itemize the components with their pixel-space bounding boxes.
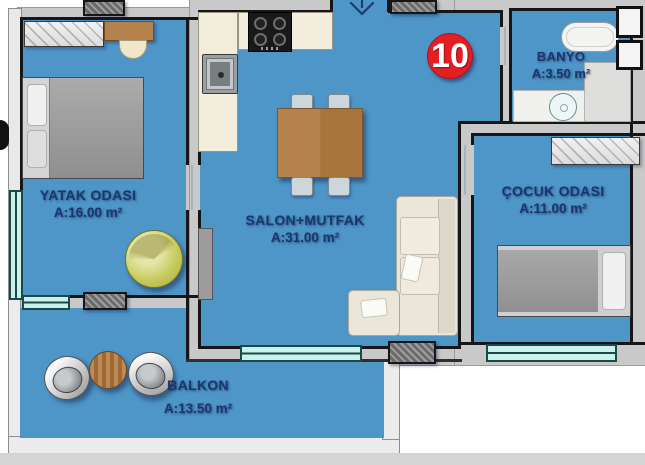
radiator-column xyxy=(390,0,437,14)
armchair-back xyxy=(129,234,179,284)
kids-room-label: ÇOCUK ODASI A:11.00 m² xyxy=(478,182,628,218)
balcony-parapet xyxy=(8,436,400,454)
unit-number: 10 xyxy=(431,39,469,73)
bathroom-sink-drain xyxy=(560,104,568,112)
balcony-parapet xyxy=(382,360,400,440)
room-name: ÇOCUK ODASI xyxy=(478,182,628,200)
balcony-chair-seat xyxy=(50,363,86,396)
room-name: SALON+MUTFAK xyxy=(225,211,385,229)
desk xyxy=(104,21,154,41)
wall-line xyxy=(186,210,189,362)
sofa xyxy=(396,196,458,336)
room-name: BANYO xyxy=(505,49,617,66)
room-area: A:11.00 m² xyxy=(478,200,628,218)
wall-line xyxy=(500,10,503,27)
kids-bed xyxy=(497,245,631,317)
wall-line xyxy=(509,8,633,11)
wardrobe xyxy=(24,21,104,47)
living-kitchen-label: SALON+MUTFAK A:31.00 m² xyxy=(225,211,385,247)
wall-line xyxy=(471,195,474,345)
wall-line xyxy=(500,65,503,124)
unit-number-badge: 10 xyxy=(427,33,473,79)
armchair xyxy=(125,230,183,288)
bathtub-inner xyxy=(566,27,614,47)
burner xyxy=(254,33,267,46)
pillow xyxy=(27,84,47,126)
dining-table xyxy=(277,108,363,178)
room-name: YATAK ODASI xyxy=(18,186,158,204)
faucet xyxy=(218,72,224,78)
room-area: A:3.50 m² xyxy=(505,66,617,83)
kids-bed-blanket xyxy=(498,250,598,312)
window xyxy=(486,344,617,362)
pillow xyxy=(27,130,47,168)
room-area: A:13.50 m² xyxy=(128,398,268,421)
entrance-arrow-icon xyxy=(344,0,380,16)
balcony-label: BALKON A:13.50 m² xyxy=(128,374,268,421)
room-area: A:31.00 m² xyxy=(225,229,385,247)
site-edge-strip xyxy=(0,453,645,465)
wall-line xyxy=(471,133,645,136)
floor-plan: 10 YATAK ODASI A:16.00 m² SALON+MUTFAK A… xyxy=(0,0,645,465)
sofa-pillow xyxy=(360,298,388,319)
window xyxy=(22,295,70,310)
burner xyxy=(273,33,286,46)
stove xyxy=(248,12,292,52)
sofa-cushion xyxy=(400,217,440,255)
wardrobe xyxy=(551,137,640,165)
dining-chair xyxy=(291,177,313,196)
room-area: A:16.00 m² xyxy=(18,204,158,222)
sofa-back xyxy=(438,199,455,333)
bedroom-label: YATAK ODASI A:16.00 m² xyxy=(18,186,158,222)
bed-blanket xyxy=(49,78,143,178)
stove-knobs xyxy=(261,47,281,50)
burner xyxy=(254,17,267,30)
wall-line xyxy=(186,17,189,165)
sofa-chaise xyxy=(348,290,400,336)
bathroom-label: BANYO A:3.50 m² xyxy=(505,49,617,83)
bed xyxy=(22,77,144,179)
sink xyxy=(202,54,238,94)
shaft-box xyxy=(616,40,643,70)
radiator-column xyxy=(388,341,436,364)
dining-chair xyxy=(328,177,350,196)
shaft-box xyxy=(616,6,643,38)
radiator-column xyxy=(83,0,125,16)
bathtub xyxy=(561,22,619,52)
door-leaf xyxy=(191,165,193,210)
tv-unit xyxy=(198,228,213,300)
column-bump xyxy=(0,120,9,150)
wall-line xyxy=(471,133,474,145)
bathroom-sink xyxy=(549,93,577,121)
window xyxy=(240,345,362,362)
wall-line xyxy=(22,17,198,20)
wall-line xyxy=(330,0,333,12)
door-leaf xyxy=(464,145,466,195)
burner xyxy=(273,17,286,30)
radiator-column xyxy=(83,292,127,310)
wall-line xyxy=(458,121,461,349)
room-name: BALKON xyxy=(128,374,268,398)
pillow xyxy=(602,252,626,310)
balcony-table xyxy=(89,351,127,389)
